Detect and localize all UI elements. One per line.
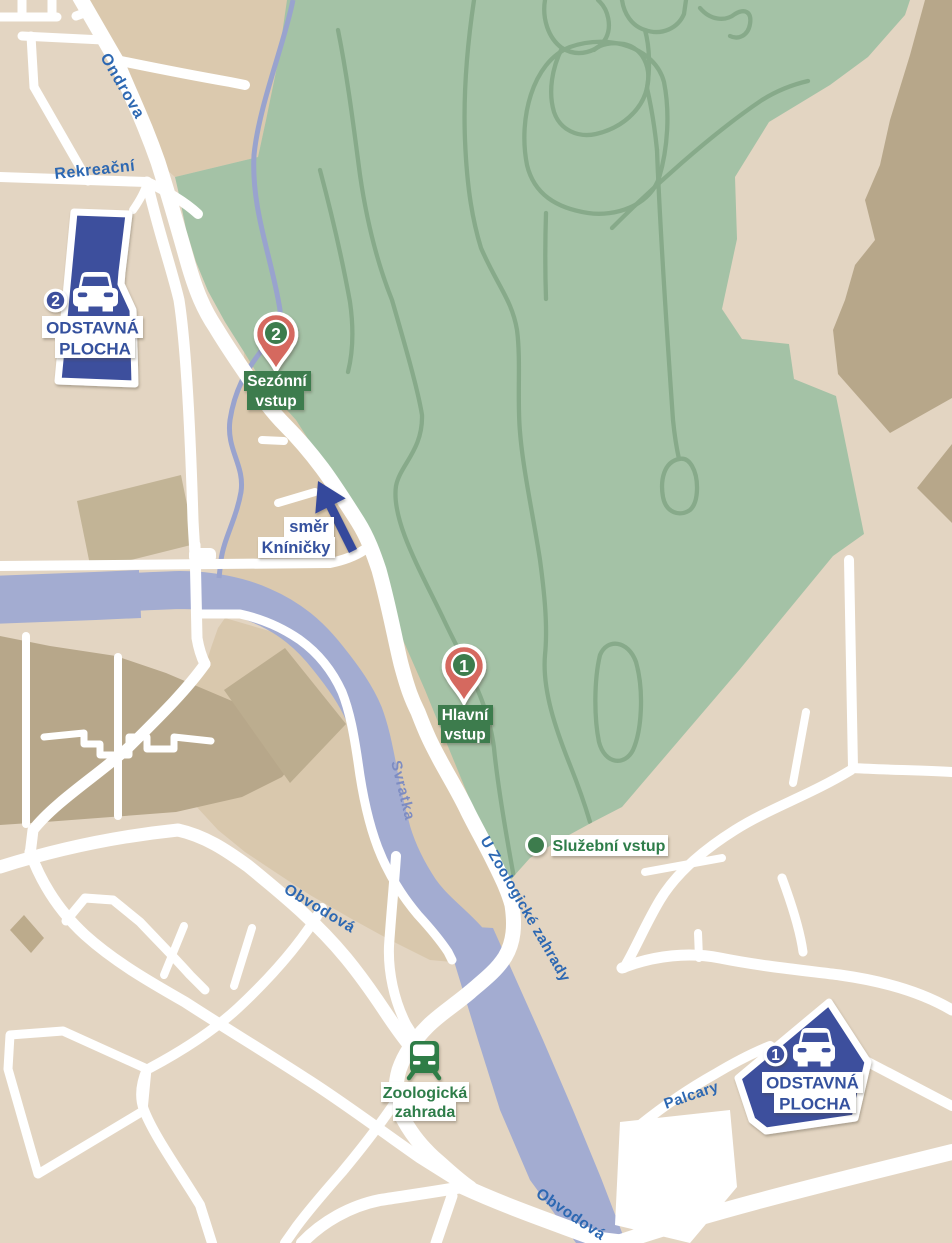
svg-text:2: 2: [51, 293, 60, 310]
svg-text:Hlavní: Hlavní: [442, 707, 489, 724]
svg-text:Sezónní: Sezónní: [247, 373, 307, 390]
svg-text:Kníničky: Kníničky: [262, 539, 332, 557]
svg-text:Zoologická: Zoologická: [383, 1085, 468, 1102]
svg-text:vstup: vstup: [444, 727, 485, 744]
svg-text:ODSTAVNÁ: ODSTAVNÁ: [46, 319, 139, 338]
svg-text:2: 2: [271, 324, 281, 344]
svg-text:vstup: vstup: [255, 393, 296, 410]
svg-text:ODSTAVNÁ: ODSTAVNÁ: [766, 1074, 859, 1093]
svg-text:PLOCHA: PLOCHA: [779, 1095, 851, 1114]
svg-text:Služební vstup: Služební vstup: [553, 838, 666, 855]
svg-text:PLOCHA: PLOCHA: [59, 340, 131, 359]
svg-text:1: 1: [459, 656, 469, 676]
svg-text:1: 1: [771, 1047, 780, 1064]
svg-text:směr: směr: [289, 518, 329, 536]
svg-text:zahrada: zahrada: [395, 1104, 456, 1121]
